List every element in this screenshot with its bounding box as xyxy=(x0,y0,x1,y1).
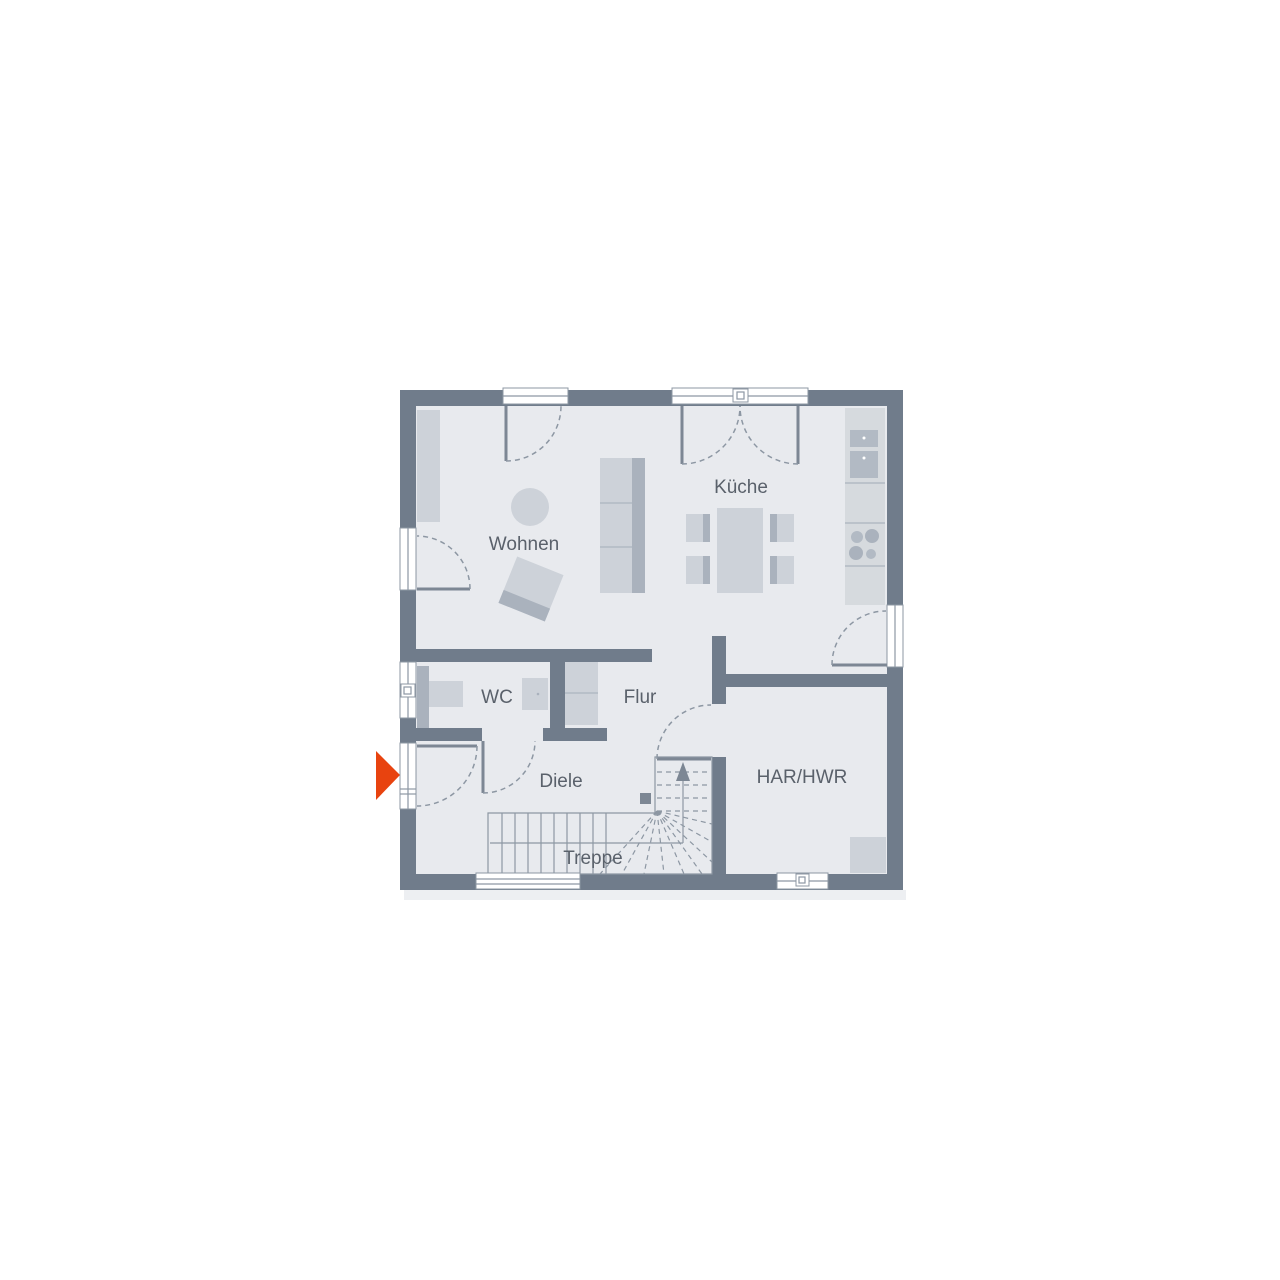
window-bottom-right xyxy=(777,873,828,889)
sideboard xyxy=(417,410,440,522)
kitchen-counter xyxy=(845,408,885,605)
column-post xyxy=(640,793,651,804)
plan-shadow xyxy=(404,890,906,900)
room-label-flur: Flur xyxy=(624,687,657,708)
entrance-arrow-icon xyxy=(376,751,400,800)
room-label-kueche: Küche xyxy=(714,477,768,498)
oven xyxy=(850,451,878,478)
side-table xyxy=(511,488,549,526)
exterior-walls xyxy=(400,390,903,890)
dining-table xyxy=(717,508,763,593)
page: Wohnen Küche WC Flur Diele HAR/HWR Trepp… xyxy=(0,0,1280,1280)
utility-appliance xyxy=(850,837,886,873)
room-label-har-hwr: HAR/HWR xyxy=(757,767,848,788)
wc-sink xyxy=(429,681,463,707)
room-label-diele: Diele xyxy=(539,771,582,792)
hall-wardrobe xyxy=(565,662,598,725)
room-label-treppe: Treppe xyxy=(563,848,623,869)
room-label-wohnen: Wohnen xyxy=(489,534,559,555)
wc-toilet xyxy=(522,678,548,710)
shelf-unit xyxy=(600,458,645,593)
installation-wall xyxy=(417,666,429,728)
window-bottom-left xyxy=(476,873,580,889)
room-label-wc: WC xyxy=(481,687,513,708)
floor-plan: Wohnen Küche WC Flur Diele HAR/HWR Trepp… xyxy=(0,0,1280,1280)
wc-window xyxy=(400,662,416,718)
